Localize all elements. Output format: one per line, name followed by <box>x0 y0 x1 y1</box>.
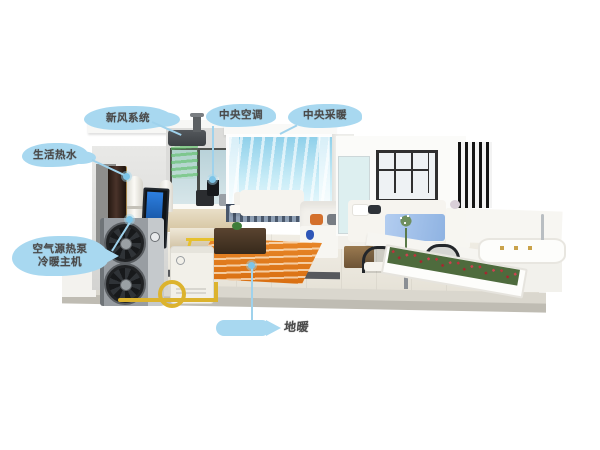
coffee-table-plant <box>232 222 242 230</box>
pipe-yellow-horizontal <box>118 298 218 302</box>
pillow-orange <box>310 214 323 225</box>
blue-vase <box>306 230 314 240</box>
vanity-flowers <box>450 200 460 209</box>
hydro-box-logo <box>176 256 185 265</box>
blinds-window <box>458 142 492 208</box>
sofa-back-section <box>240 190 304 216</box>
floor-heating-label: 地暖 <box>283 321 348 333</box>
floor-heating-blob <box>216 320 270 336</box>
central-ac-dot <box>209 176 216 183</box>
central-heating-callout: 中央采暖 <box>288 101 364 131</box>
pipe-yellow-loop <box>158 280 186 308</box>
floor-heating-leader <box>251 265 253 321</box>
heat-pump-label-line1: 空气源热泵 <box>12 243 108 255</box>
bedroom-window-mullions <box>379 153 429 193</box>
bed-pillow-white <box>352 204 369 216</box>
central-ac-leader <box>212 126 214 178</box>
hot-water-label: 生活热水 <box>22 149 88 161</box>
central-ac-label: 中央空调 <box>206 109 276 121</box>
fresh-air-label: 新风系统 <box>84 112 172 124</box>
heat-pump-logo <box>150 232 160 242</box>
heat-pump-dot <box>126 216 133 223</box>
coffee-table <box>214 228 266 254</box>
floor-heating-blob-arrow <box>266 320 281 336</box>
vent-chimney-cap <box>190 113 204 117</box>
bath-faucet <box>541 214 544 240</box>
floor-heating-dot <box>248 262 255 269</box>
heat-pump-home-diagram: 新风系统 中央空调 中央采暖 生活热水 空气源热泵 冷暖主机 地暖 <box>0 0 600 450</box>
hot-water-tank-band <box>127 206 143 209</box>
central-heating-label: 中央采暖 <box>288 109 362 121</box>
bathtub <box>478 238 566 264</box>
pipe-yellow-vertical <box>214 282 218 302</box>
hot-water-dot <box>123 173 130 180</box>
bed-pillow-dark <box>368 205 381 214</box>
central-ac-callout: 中央空调 <box>206 102 278 130</box>
hot-water-callout: 生活热水 <box>22 141 100 171</box>
vent-chimney <box>193 115 201 132</box>
curtain-right <box>319 136 330 208</box>
heat-pump-label-line2: 冷暖主机 <box>12 256 108 268</box>
bathtub-gold-accents <box>500 246 540 250</box>
heat-pump-callout: 空气源热泵 冷暖主机 <box>12 236 132 282</box>
